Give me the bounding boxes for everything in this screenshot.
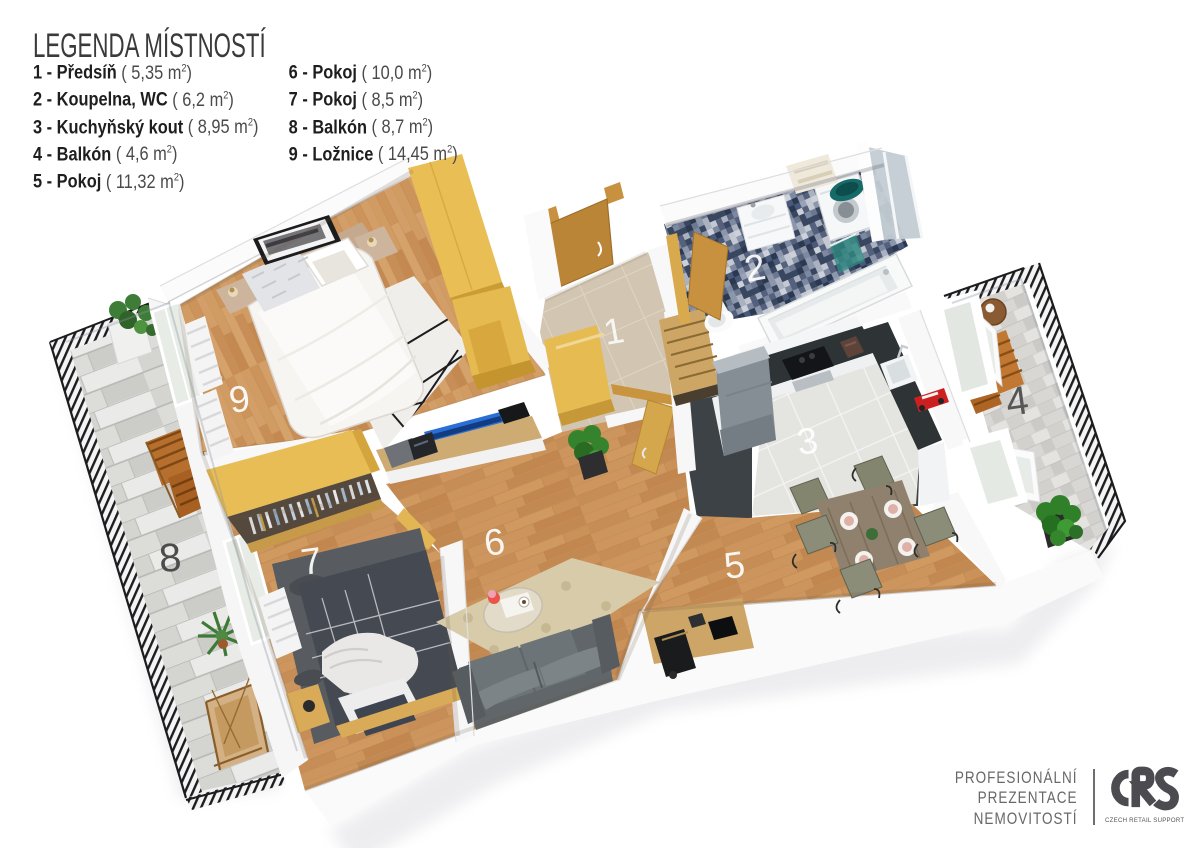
svg-text:8: 8	[158, 536, 183, 581]
